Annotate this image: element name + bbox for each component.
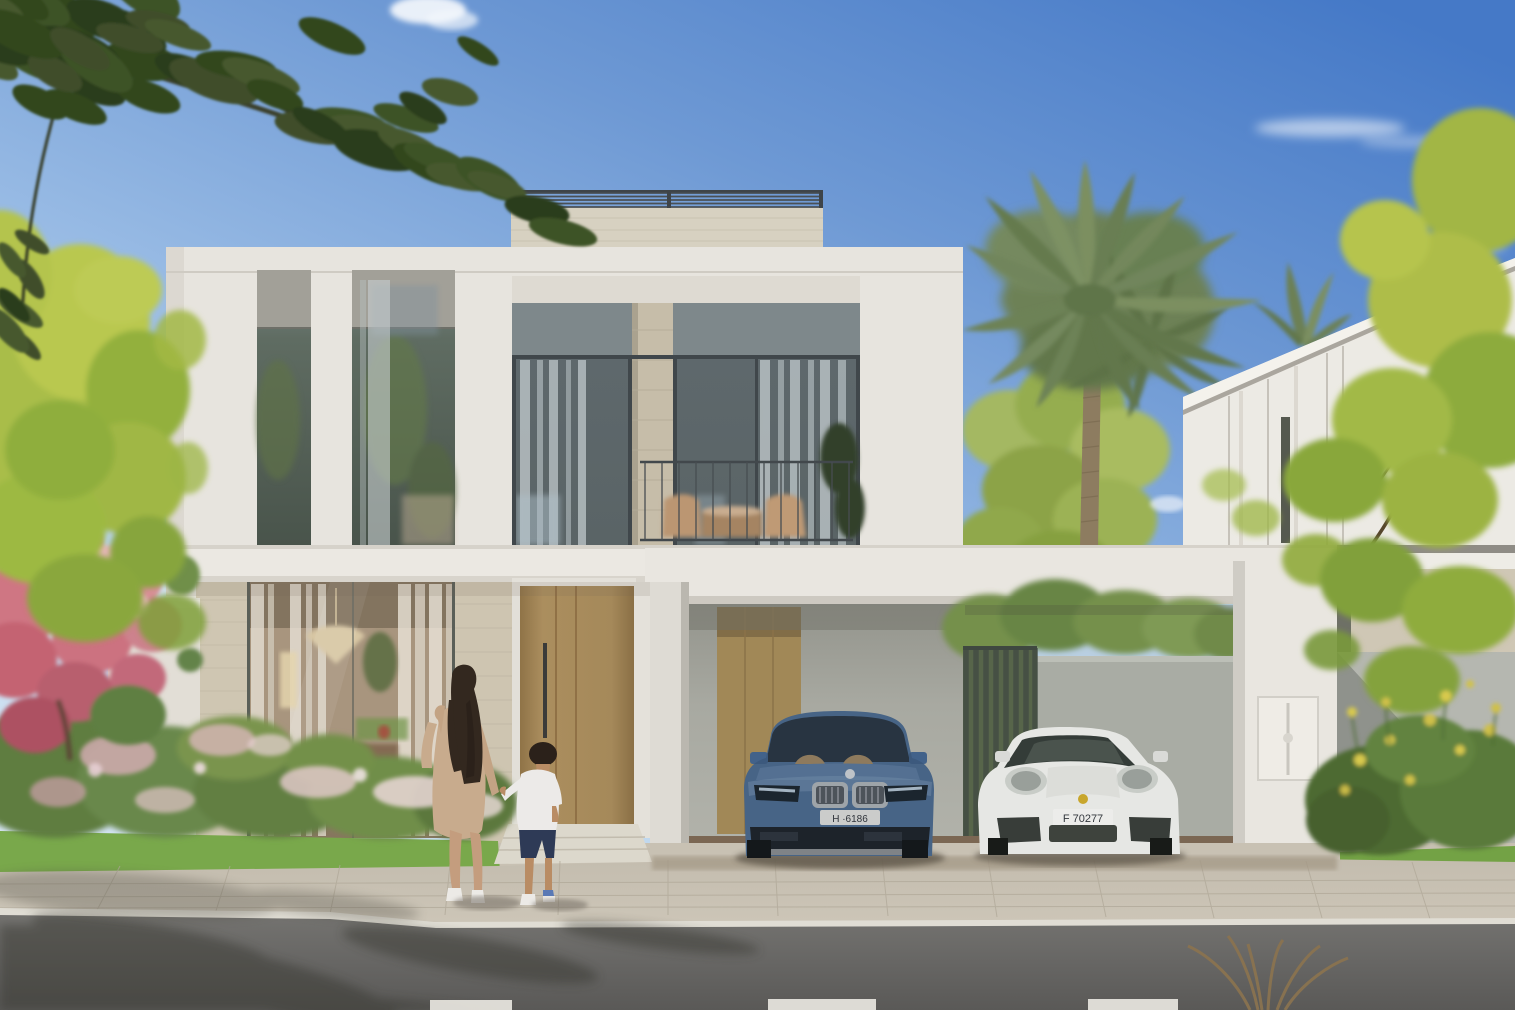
svg-text:F 70277: F 70277 <box>1063 813 1103 825</box>
